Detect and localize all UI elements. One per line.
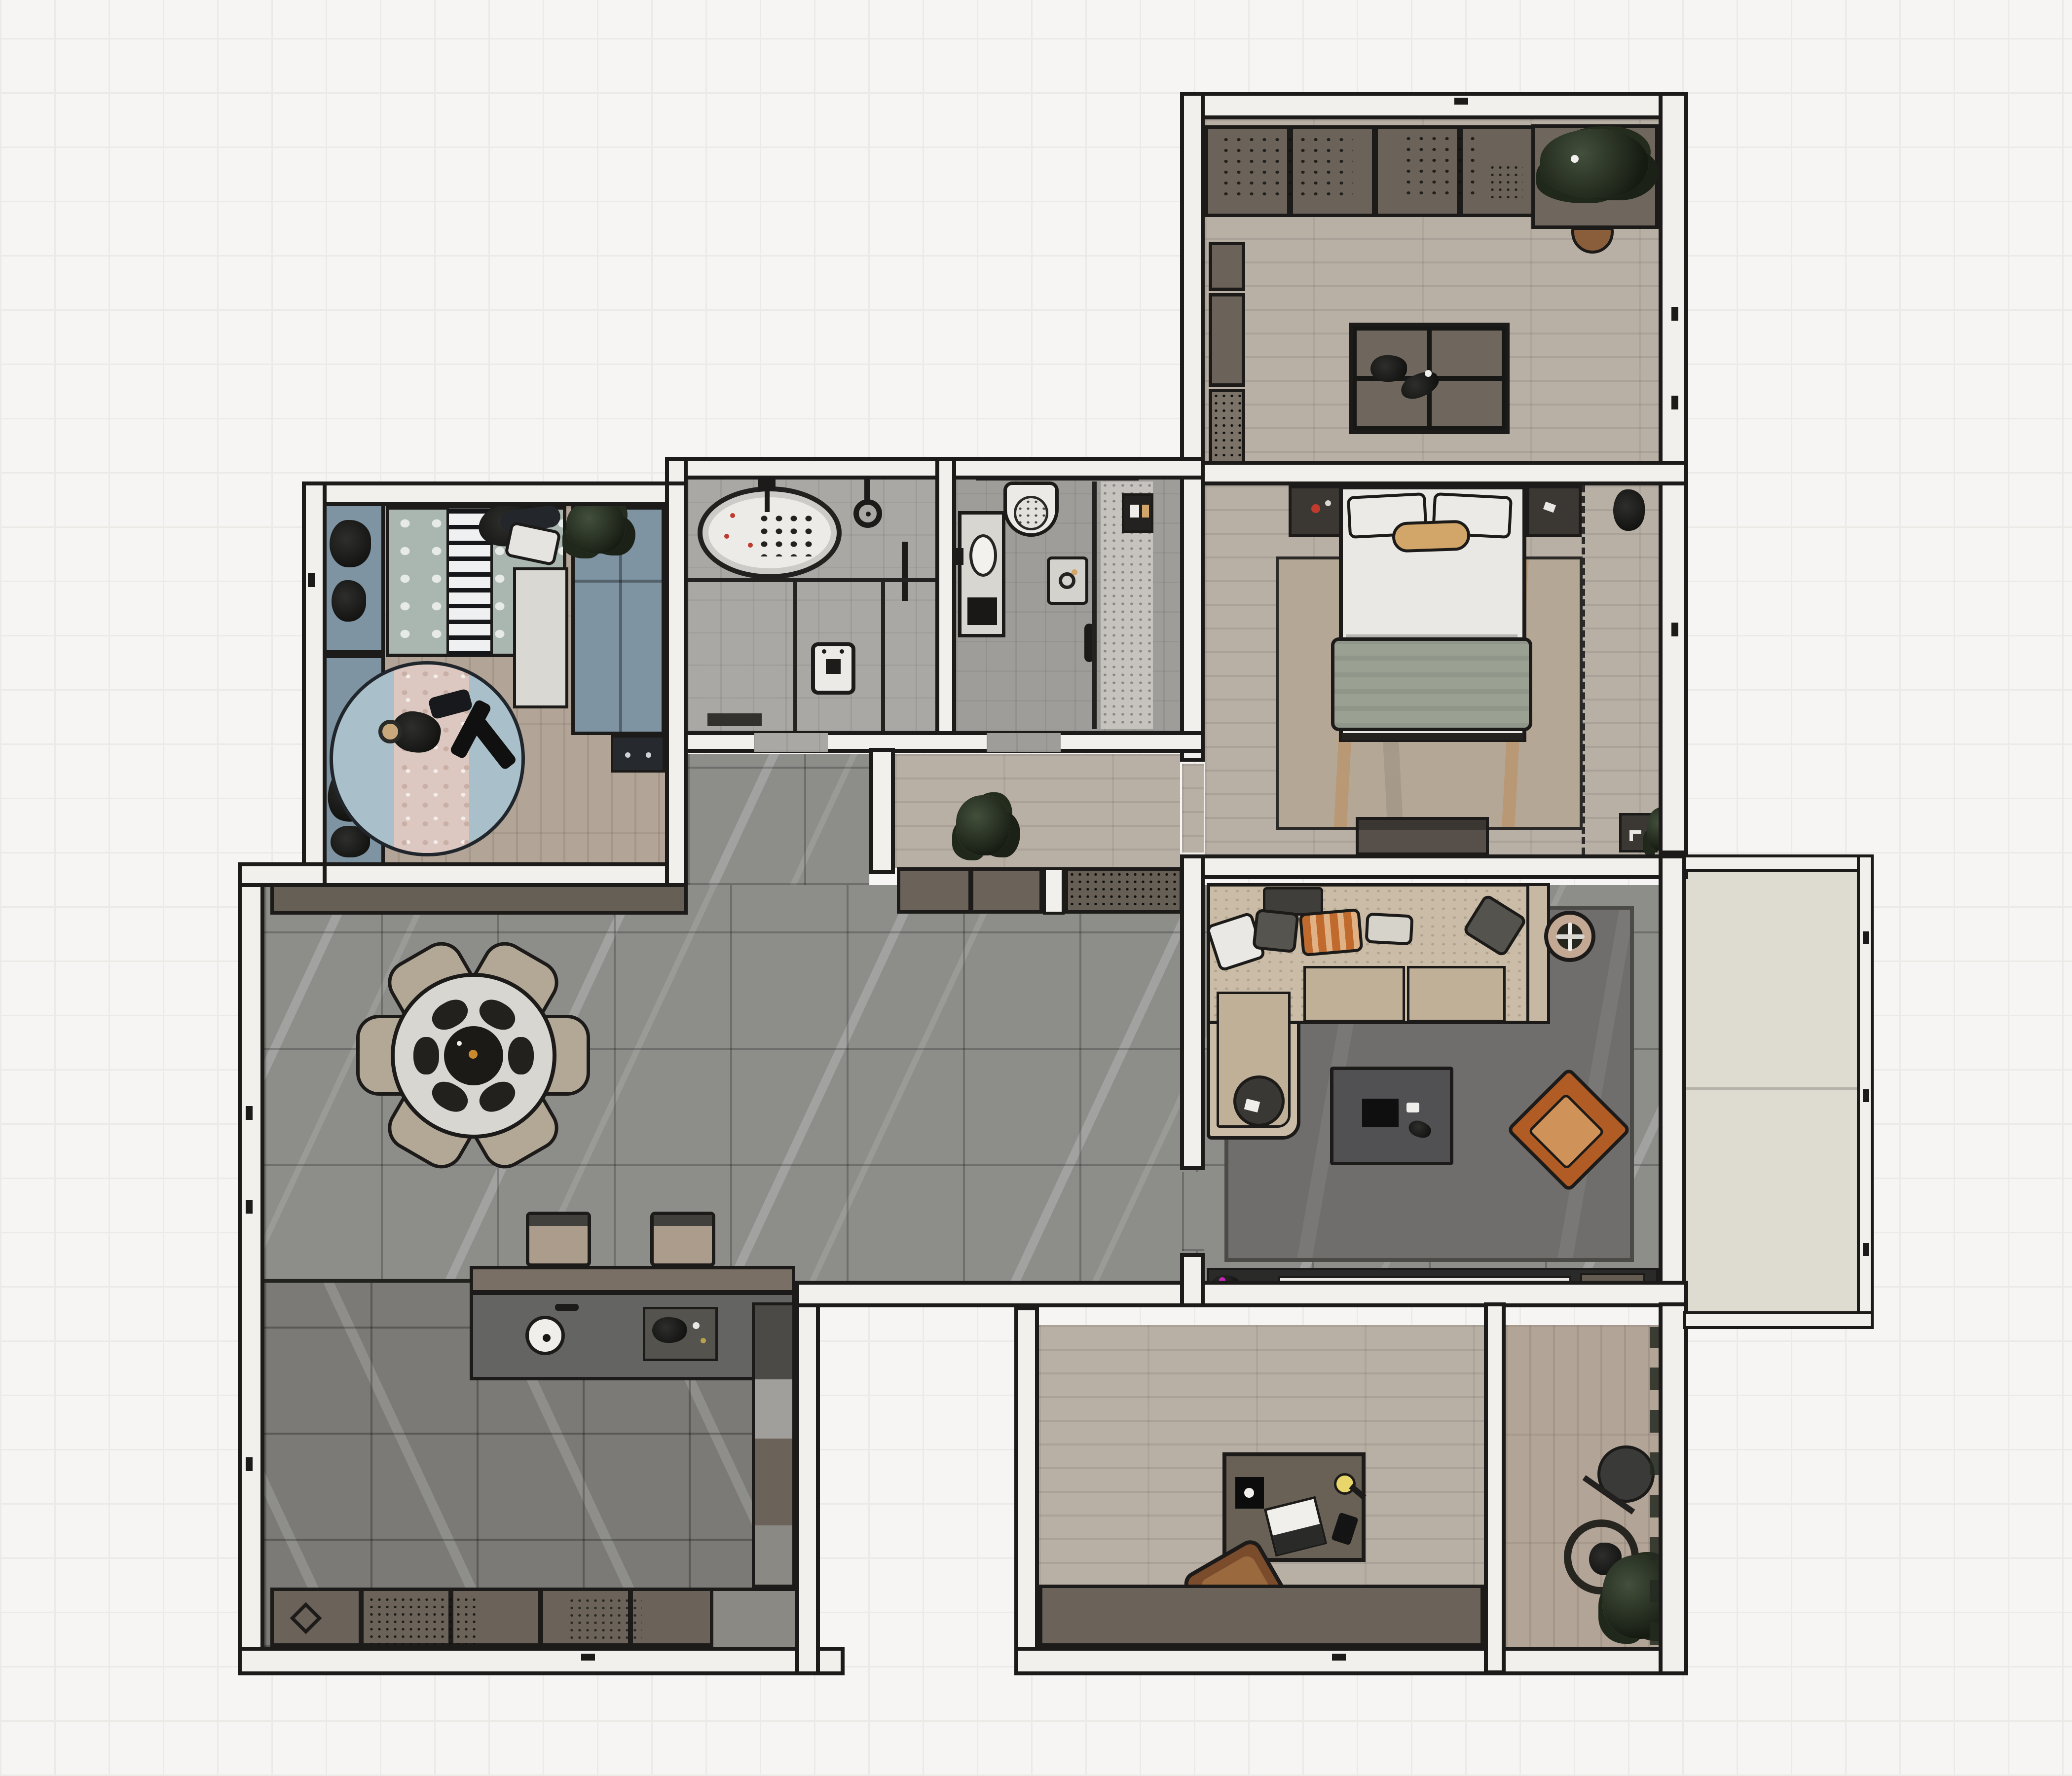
media-console (1356, 817, 1489, 855)
fixture-slot (1130, 505, 1139, 518)
wall (1180, 854, 1205, 1170)
sofa-seat (1303, 966, 1405, 1022)
door-opening (754, 733, 828, 752)
laptop-keyboard (1273, 1524, 1325, 1555)
stool-back (529, 1215, 588, 1226)
window-tick (1863, 1243, 1869, 1256)
plant-on-cabinet-icon (1220, 134, 1353, 203)
desk-items-icon (332, 580, 366, 622)
room-hallway (895, 754, 1180, 868)
glass-partition-v (793, 578, 797, 731)
wall (302, 862, 688, 887)
round-play-rug (330, 661, 525, 856)
desk-items-icon (330, 520, 371, 567)
washer-knob (840, 649, 844, 654)
nightstand-right (1526, 485, 1582, 537)
wall (1180, 461, 1688, 485)
wall (1659, 854, 1686, 1329)
food-dot (701, 1338, 706, 1343)
tub-petal-red (748, 543, 753, 548)
island-panel (1432, 331, 1502, 376)
hob-diamond-icon (290, 1602, 322, 1634)
sofa-arm-right (1526, 883, 1550, 1024)
fixture-slot (1142, 505, 1149, 518)
washer-knob (822, 649, 826, 654)
kids-dresser (611, 735, 665, 773)
door-opening (987, 733, 1061, 752)
washing-machine-icon (811, 642, 855, 695)
large-plant-icon (1540, 129, 1649, 198)
wardrobe-shelf (575, 580, 662, 583)
centerpiece-orange (469, 1050, 478, 1059)
island-panel (1432, 381, 1502, 426)
book-icon (1362, 1099, 1399, 1127)
shower-head-icon (853, 499, 882, 528)
wall (1180, 92, 1205, 485)
balcony-floor-seam (1686, 1087, 1858, 1090)
floor-plan-page: { "meta": { "title": "Apartment floor pl… (0, 0, 2072, 1776)
drain-dot (543, 1334, 551, 1342)
wall (1180, 92, 1688, 119)
faucet-icon (555, 1304, 579, 1311)
dresser-handle (646, 752, 651, 758)
sideboard (897, 867, 1043, 914)
side-table-round (1233, 1075, 1285, 1127)
small-decor-icon (1488, 164, 1523, 198)
mug-icon (1406, 1103, 1419, 1112)
cabinet-light-segment (710, 1591, 799, 1650)
window-tick (1671, 396, 1678, 409)
shower-glass (1092, 481, 1097, 729)
wall (238, 862, 327, 887)
armchair-cushion (1528, 1093, 1605, 1170)
room-kitchen (264, 1283, 795, 1647)
wall (869, 748, 895, 874)
decor-items-icon (1370, 355, 1407, 382)
toy-ring-icon (378, 720, 402, 743)
wardrobe-dashed-line (1582, 485, 1585, 854)
decor-mark (1543, 502, 1556, 513)
appliance-dark (755, 1305, 792, 1379)
room-home-office (1039, 1325, 1484, 1647)
basin (969, 534, 997, 577)
sideboard (1065, 867, 1183, 914)
wall (1014, 1647, 1688, 1675)
toilet-seat (1014, 496, 1048, 530)
window-tick (1863, 931, 1869, 944)
throw-pillow-light (1365, 913, 1413, 946)
speaker-cone (1244, 1488, 1254, 1498)
room-corridor (688, 754, 869, 885)
appliance-gray (755, 1525, 792, 1585)
room-dining-living (264, 885, 1659, 1283)
cabinet-speckle (368, 1596, 476, 1644)
room-utility (1506, 1325, 1659, 1647)
appliance-column (752, 1302, 795, 1588)
planter-leaf (1556, 934, 1585, 939)
plant-on-wardrobe-icon (566, 499, 626, 554)
food-dot (693, 1322, 700, 1329)
coffee-table (1330, 1067, 1453, 1165)
place-setting (413, 1037, 439, 1074)
dresser-handle (625, 752, 630, 758)
sofa-seat (1407, 966, 1506, 1022)
bar-stool (650, 1212, 715, 1267)
bathtub-icon (698, 486, 842, 579)
dining-table (391, 973, 556, 1139)
glass-partition-v (881, 578, 885, 731)
stool-back (654, 1215, 712, 1226)
plant-highlight (1571, 155, 1579, 163)
wall (238, 862, 264, 1675)
wall (1014, 1306, 1039, 1675)
phone-icon (1331, 1512, 1359, 1546)
wardrobe-items-icon (1613, 489, 1645, 531)
side-table-deco (1244, 1099, 1260, 1112)
lamp-red-icon (1311, 504, 1320, 513)
tub-faucet-stem (765, 489, 770, 512)
double-bed (1339, 485, 1526, 742)
wall-pillar (1043, 867, 1065, 915)
room-multipurpose (1205, 119, 1659, 461)
washer-door (826, 659, 841, 674)
vanity-sink-icon (958, 511, 1005, 637)
window-tick (1454, 98, 1468, 105)
room-master-bedroom (1205, 485, 1659, 854)
tucked-chair-icon (1571, 227, 1614, 254)
wall (665, 457, 1205, 480)
island-counter-top (470, 1266, 795, 1294)
shower-fixture-icon (1122, 493, 1153, 533)
window-tick (246, 1106, 253, 1120)
dining-set (361, 943, 578, 1160)
office-cabinets (1039, 1585, 1484, 1647)
tub-petals (757, 512, 816, 556)
wall (935, 457, 956, 753)
nightstand-left (1289, 485, 1344, 537)
accent-pillow-tan (1392, 519, 1471, 553)
door-opening (1182, 764, 1204, 852)
window-tick (581, 1654, 595, 1661)
window-tick (1671, 623, 1678, 636)
centerpiece (444, 1026, 503, 1085)
tall-white-panel (513, 567, 568, 708)
room-bathroom-shower (956, 480, 1180, 731)
kitchen-base-cabinets (270, 1588, 795, 1647)
window-tick (1863, 1089, 1869, 1102)
appliance-light (755, 1379, 792, 1439)
towel-rail (902, 542, 908, 601)
food-items-icon (652, 1317, 687, 1343)
place-setting (508, 1037, 534, 1074)
decor-dot (1425, 370, 1432, 377)
wall (302, 481, 327, 887)
corner-box-glyph (1629, 830, 1633, 841)
toilet-icon (1003, 481, 1059, 537)
wall (1180, 1253, 1205, 1307)
wall (795, 1281, 1688, 1307)
toy-bar-icon (467, 713, 518, 771)
vanity-drawer (967, 597, 997, 625)
console-top-band (1359, 820, 1486, 830)
balcony-wall (1683, 1311, 1874, 1329)
tub-petal-red (730, 513, 735, 518)
glass-partition-h (688, 578, 935, 582)
bath-mat (707, 713, 762, 726)
laptop-icon (1264, 1496, 1328, 1556)
throw-pillow-gray (1252, 909, 1299, 954)
balcony-wall (1683, 854, 1874, 872)
shelf-divider (327, 650, 385, 658)
room-kids-bedroom (327, 506, 665, 862)
vine-edge (1650, 1327, 1659, 1645)
potted-plant-icon (956, 795, 1010, 855)
planter-round (1544, 911, 1595, 962)
room-balcony (1686, 871, 1858, 1312)
island-counter (470, 1292, 795, 1380)
room-opening (1182, 1172, 1204, 1251)
wall (1180, 461, 1205, 762)
side-cabinet (1209, 242, 1245, 291)
cabinet-speckle (568, 1597, 642, 1643)
wall (302, 481, 688, 506)
remote-icon (1406, 1118, 1433, 1141)
shower-head-dot (866, 512, 871, 517)
wall (665, 731, 1205, 753)
scale-mat-icon (1047, 556, 1088, 605)
speaker-icon (1235, 1477, 1264, 1509)
cutting-board (643, 1307, 718, 1361)
window-tick (1671, 307, 1678, 321)
window-tick (1332, 1654, 1346, 1661)
wall (238, 1647, 845, 1675)
island-table (1349, 323, 1510, 434)
room-bathroom-tub (688, 480, 935, 731)
footboard (1342, 733, 1523, 740)
plant-on-cabinet-icon (1402, 133, 1483, 202)
wall (1180, 854, 1688, 879)
appliance-brown (755, 1439, 792, 1525)
tub-petal-red (724, 534, 729, 539)
throw-pillow-orange-striped (1298, 908, 1363, 957)
wall (1659, 1302, 1688, 1675)
sink-icon (525, 1316, 565, 1355)
bar-stool (526, 1212, 591, 1267)
wall (665, 481, 688, 887)
centerpiece-dot (457, 1041, 462, 1046)
decor-dot (1325, 500, 1331, 506)
window-tick (246, 1200, 253, 1214)
wall (795, 1282, 820, 1675)
scale-glyph-dot (1072, 569, 1077, 575)
bed-blanket (1331, 637, 1532, 731)
side-cabinet (1209, 293, 1245, 387)
window-tick (246, 1457, 253, 1471)
window-tick (308, 573, 315, 587)
wall (1484, 1302, 1506, 1674)
